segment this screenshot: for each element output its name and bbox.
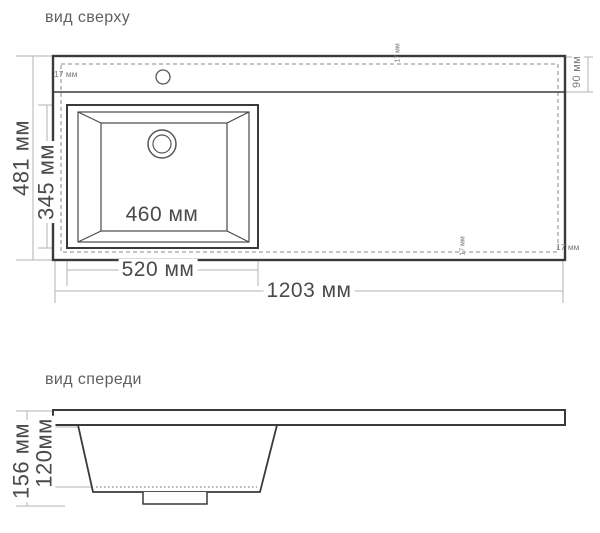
top-view-geometry — [53, 56, 565, 260]
sink-dimension-drawing: вид сверху 481 мм 345 мм 460 мм 520 мм 1… — [0, 0, 600, 533]
dim-label-bowl-inner-width: 460 мм — [123, 204, 202, 226]
front-view-title: вид спереди — [45, 371, 142, 389]
drain-outer-icon — [148, 130, 176, 158]
dim-label-bowl-width: 520 мм — [119, 259, 198, 281]
countertop-profile-outline — [53, 410, 565, 425]
front-view-geometry — [53, 410, 565, 504]
dim-label-total-height: 156 мм — [9, 420, 32, 502]
dim-label-bowl-depth: 345 мм — [34, 141, 57, 223]
dim-label-rim-offset-top: 17 мм — [394, 43, 401, 62]
dim-label-overall-depth: 481 мм — [9, 117, 32, 199]
dim-label-rim-offset-top-left: 17 мм — [54, 70, 78, 79]
dim-label-overall-width: 1203 мм — [264, 280, 355, 302]
drawing-canvas — [0, 0, 600, 533]
drain-fitting-outline — [143, 492, 207, 504]
dim-label-basin-height: 120мм — [32, 415, 55, 490]
dim-label-rim-offset-bottom: 17 мм — [459, 236, 466, 255]
dim-label-deck-width: 90 мм — [572, 53, 584, 91]
basin-profile-outline — [78, 425, 277, 492]
bowl-outer-outline — [67, 105, 258, 248]
dim-label-rim-offset-bottom-right: 17 мм — [556, 243, 580, 252]
top-view-title: вид сверху — [45, 9, 130, 27]
